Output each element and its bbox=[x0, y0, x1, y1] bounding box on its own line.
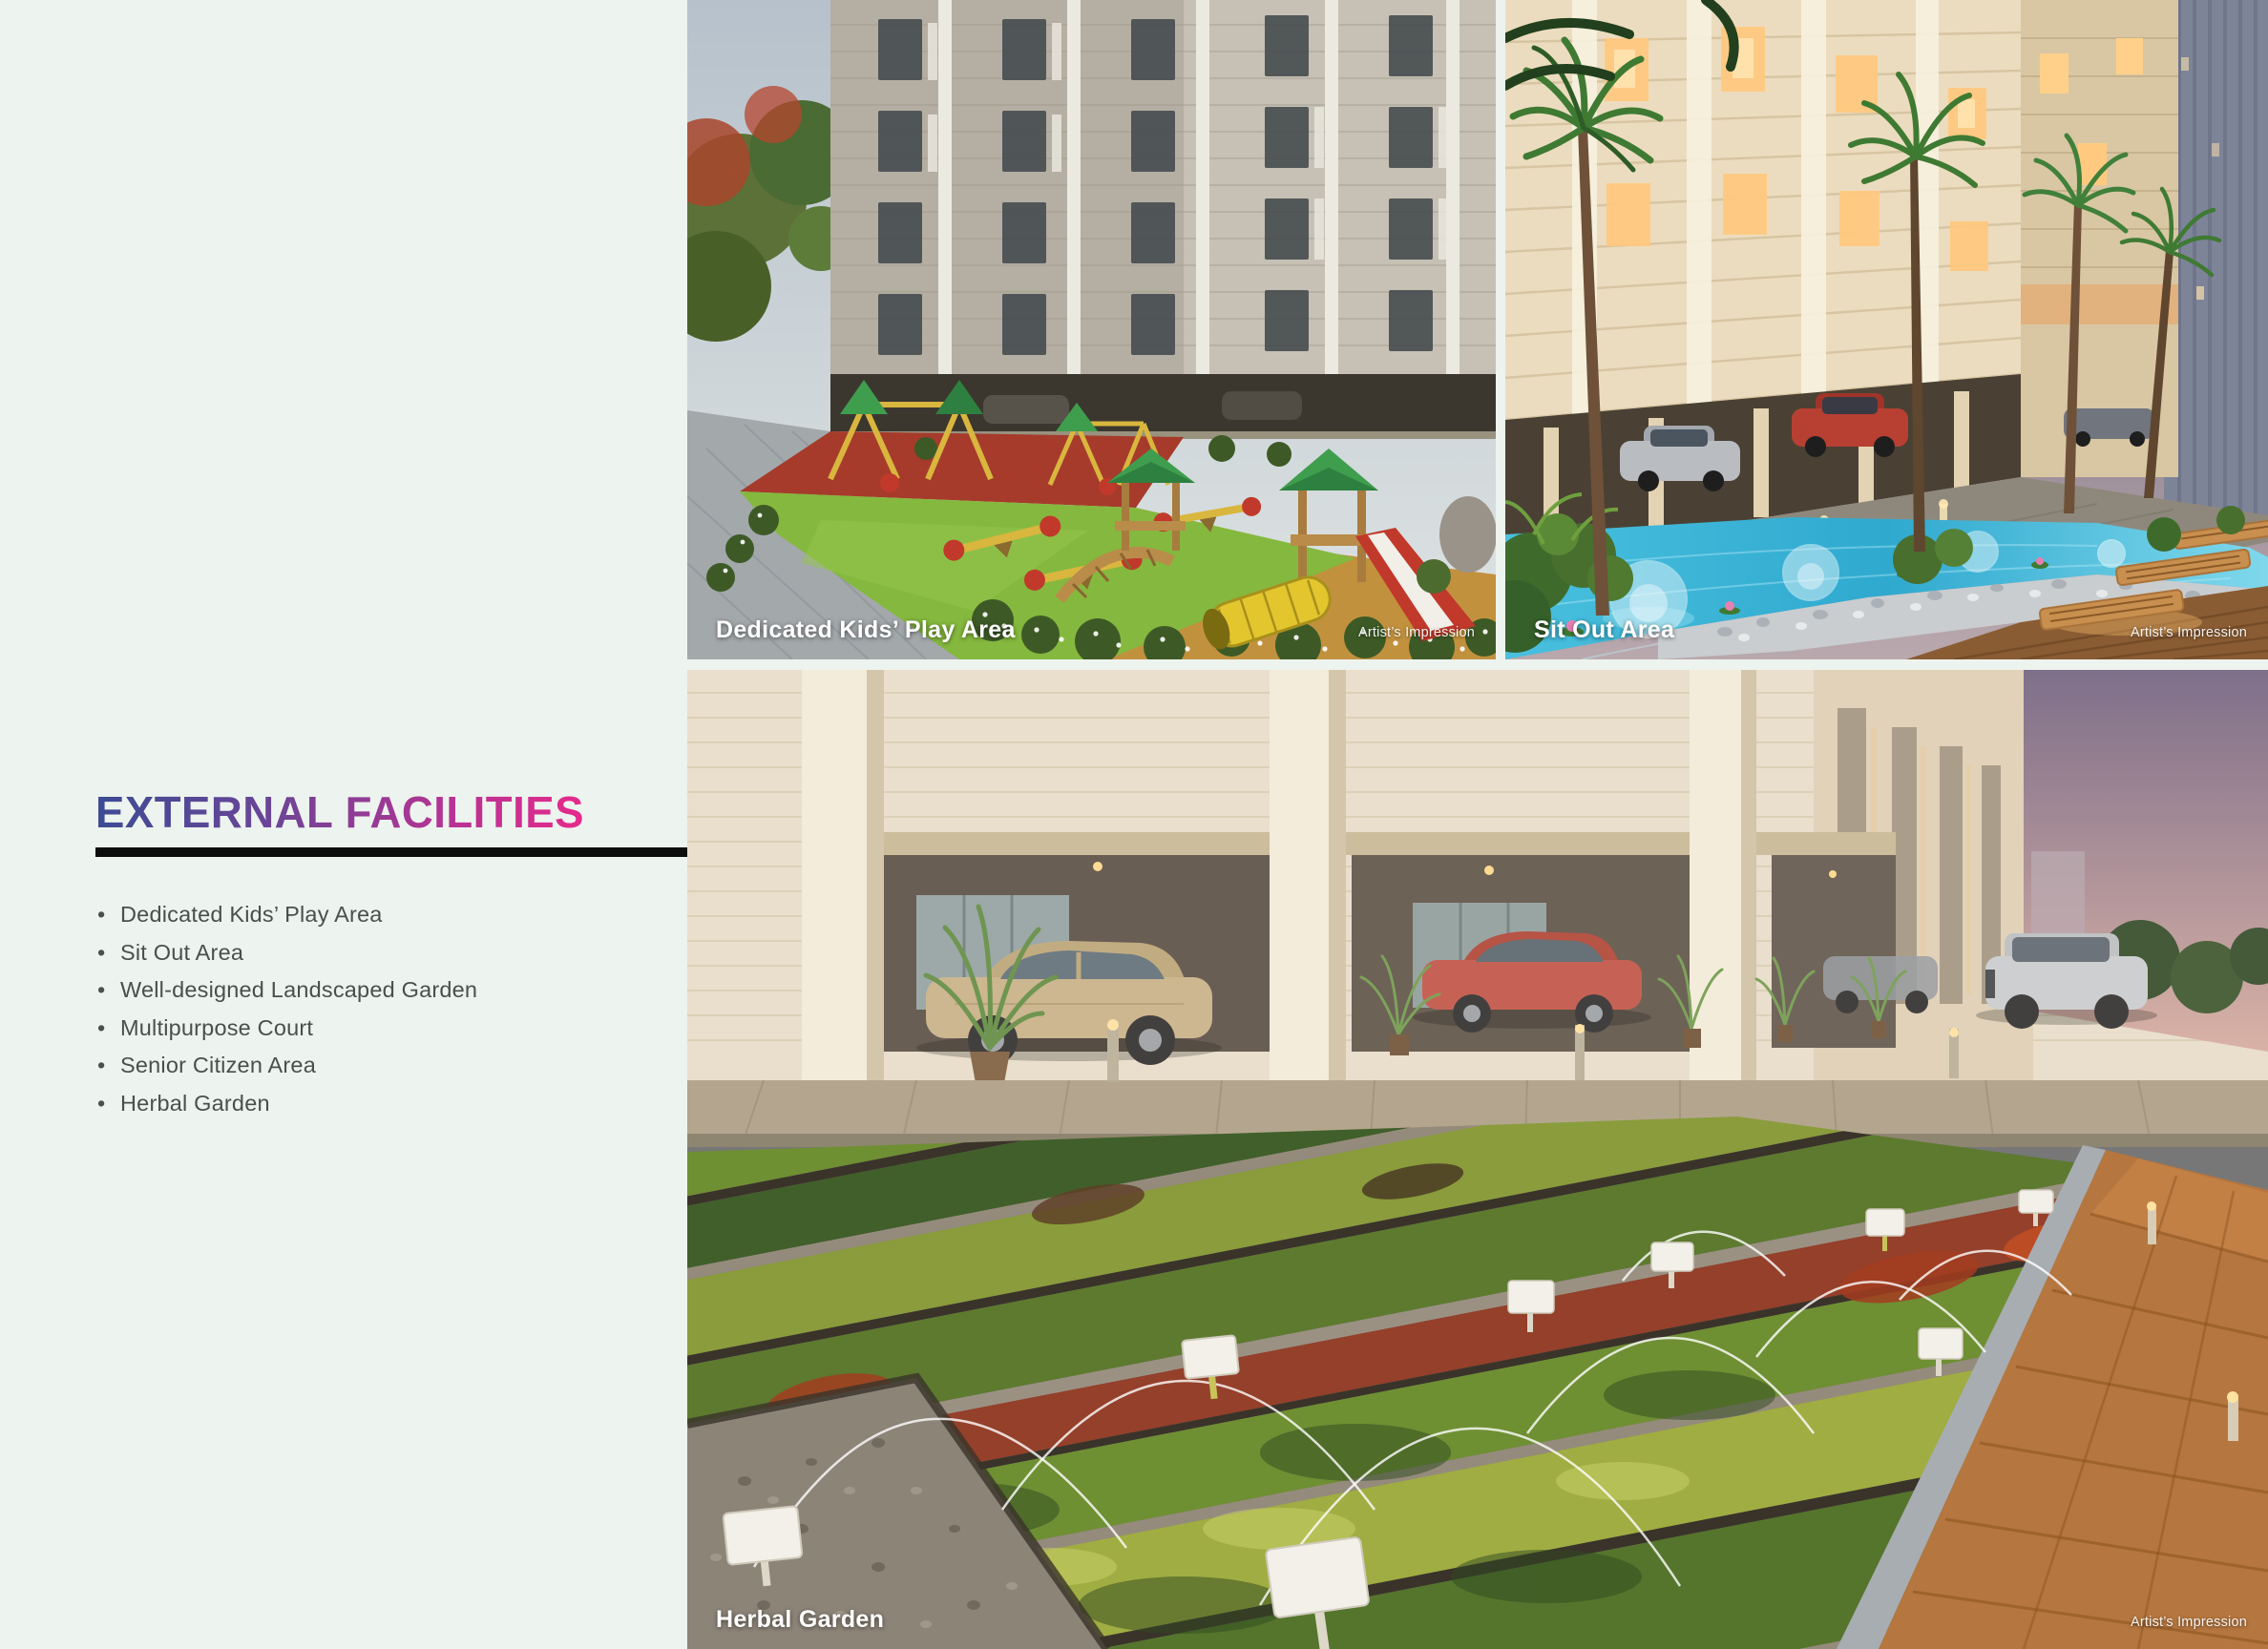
photo-caption: Sit Out Area bbox=[1534, 616, 1674, 644]
facility-label: Multipurpose Court bbox=[120, 1015, 313, 1040]
sit-out-area-illustration bbox=[1505, 0, 2268, 659]
photo-caption: Dedicated Kids’ Play Area bbox=[716, 616, 1016, 644]
page-title-text: EXTERNAL FACILITIES bbox=[95, 787, 584, 837]
page-title: EXTERNAL FACILITIES bbox=[95, 783, 687, 844]
artists-impression-label: Artist’s Impression bbox=[2131, 1615, 2247, 1630]
herbal-garden-illustration bbox=[687, 670, 2268, 1649]
title-underline bbox=[95, 847, 687, 857]
facility-label: Dedicated Kids’ Play Area bbox=[120, 902, 383, 927]
facility-item: Multipurpose Court bbox=[95, 1010, 630, 1048]
kids-play-area-illustration bbox=[687, 0, 1496, 659]
photo-kids-play-area: Dedicated Kids’ Play Area Artist’s Impre… bbox=[687, 0, 1496, 659]
facility-item: Dedicated Kids’ Play Area bbox=[95, 896, 630, 934]
brochure-page: EXTERNAL FACILITIES Dedicated Kids’ Play… bbox=[0, 0, 2268, 1649]
facility-item: Herbal Garden bbox=[95, 1085, 630, 1123]
artists-impression-label: Artist’s Impression bbox=[2131, 625, 2247, 640]
facility-label: Well-designed Landscaped Garden bbox=[120, 977, 477, 1002]
photo-sit-out-area: Sit Out Area Artist’s Impression bbox=[1505, 0, 2268, 659]
apartment-building bbox=[830, 0, 1496, 439]
rock-feature bbox=[1439, 496, 1496, 573]
photo-herbal-garden: Herbal Garden Artist’s Impression bbox=[687, 670, 2268, 1649]
facility-item: Well-designed Landscaped Garden bbox=[95, 971, 630, 1010]
facility-list: Dedicated Kids’ Play Area Sit Out Area W… bbox=[95, 896, 630, 1122]
artists-impression-label: Artist’s Impression bbox=[1358, 625, 1475, 640]
facility-label: Herbal Garden bbox=[120, 1091, 270, 1116]
facility-label: Senior Citizen Area bbox=[120, 1053, 316, 1077]
facility-item: Sit Out Area bbox=[95, 934, 630, 972]
facility-label: Sit Out Area bbox=[120, 940, 243, 965]
facility-item: Senior Citizen Area bbox=[95, 1047, 630, 1085]
photo-caption: Herbal Garden bbox=[716, 1606, 884, 1634]
